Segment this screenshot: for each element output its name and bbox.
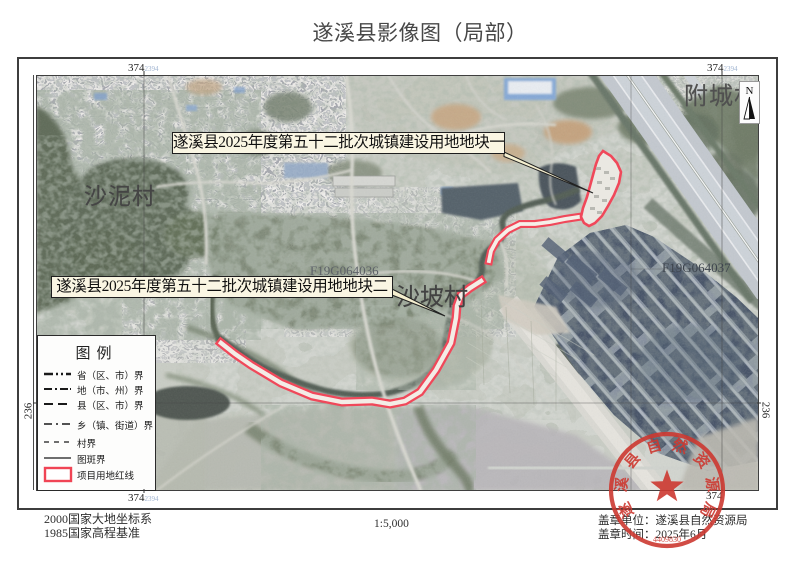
svg-text:4409830: 4409830 bbox=[653, 535, 681, 544]
svg-text:源: 源 bbox=[702, 476, 722, 493]
svg-text:溪: 溪 bbox=[612, 475, 632, 493]
